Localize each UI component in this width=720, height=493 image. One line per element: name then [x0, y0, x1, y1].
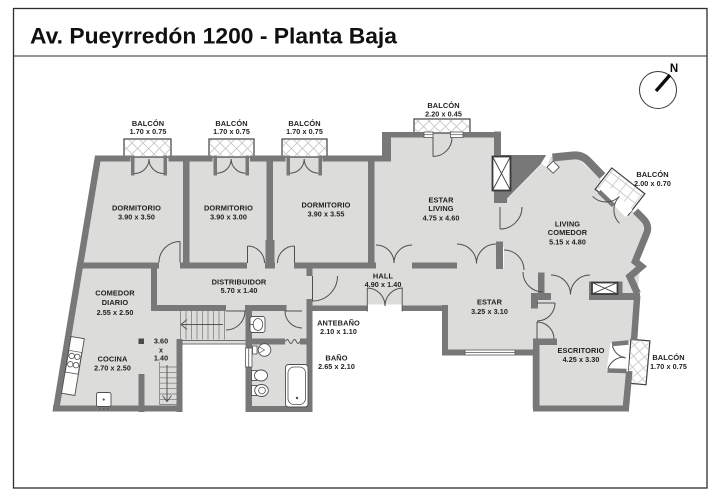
- svg-text:COCINA: COCINA: [98, 355, 128, 364]
- svg-text:DORMITORIO: DORMITORIO: [204, 204, 253, 213]
- svg-text:2.20 x 0.45: 2.20 x 0.45: [425, 110, 462, 119]
- svg-text:1.70 x 0.75: 1.70 x 0.75: [286, 127, 323, 136]
- svg-text:5.70 x 1.40: 5.70 x 1.40: [221, 286, 258, 295]
- svg-text:2.65 x 2.10: 2.65 x 2.10: [318, 362, 355, 371]
- svg-text:3.90 x 3.00: 3.90 x 3.00: [210, 213, 247, 222]
- svg-text:COMEDOR: COMEDOR: [95, 289, 135, 298]
- svg-text:3.90 x 3.50: 3.90 x 3.50: [118, 213, 155, 222]
- svg-text:3.25 x 3.10: 3.25 x 3.10: [471, 307, 508, 316]
- svg-text:N: N: [670, 63, 678, 75]
- svg-text:1.70 x 0.75: 1.70 x 0.75: [650, 362, 687, 371]
- svg-text:DORMITORIO: DORMITORIO: [112, 204, 161, 213]
- svg-text:3.60: 3.60: [154, 337, 168, 346]
- svg-text:4.75 x 4.60: 4.75 x 4.60: [423, 214, 460, 223]
- svg-text:1.70 x 0.75: 1.70 x 0.75: [130, 127, 167, 136]
- svg-text:COMEDOR: COMEDOR: [548, 228, 588, 237]
- svg-text:LIVING: LIVING: [428, 204, 453, 213]
- svg-text:1.40: 1.40: [154, 354, 168, 363]
- svg-text:2.10 x 1.10: 2.10 x 1.10: [320, 327, 357, 336]
- svg-text:BALCÓN: BALCÓN: [636, 170, 668, 179]
- svg-text:Av. Pueyrredón 1200 - Planta B: Av. Pueyrredón 1200 - Planta Baja: [30, 24, 398, 49]
- svg-text:ESTAR: ESTAR: [477, 298, 503, 307]
- svg-text:ESCRITORIO: ESCRITORIO: [557, 346, 604, 355]
- svg-text:4.90 x 1.40: 4.90 x 1.40: [365, 280, 402, 289]
- svg-text:5.15 x 4.80: 5.15 x 4.80: [549, 238, 586, 247]
- svg-text:4.25 x 3.30: 4.25 x 3.30: [563, 355, 600, 364]
- svg-text:2.00 x 0.70: 2.00 x 0.70: [634, 179, 671, 188]
- svg-text:2.55 x 2.50: 2.55 x 2.50: [97, 308, 134, 317]
- svg-text:2.70 x 2.50: 2.70 x 2.50: [94, 364, 131, 373]
- svg-text:DORMITORIO: DORMITORIO: [301, 201, 350, 210]
- svg-text:DIARIO: DIARIO: [102, 298, 129, 307]
- svg-text:BALCÓN: BALCÓN: [652, 353, 684, 362]
- svg-text:3.90 x 3.55: 3.90 x 3.55: [308, 210, 345, 219]
- svg-text:1.70 x 0.75: 1.70 x 0.75: [213, 127, 250, 136]
